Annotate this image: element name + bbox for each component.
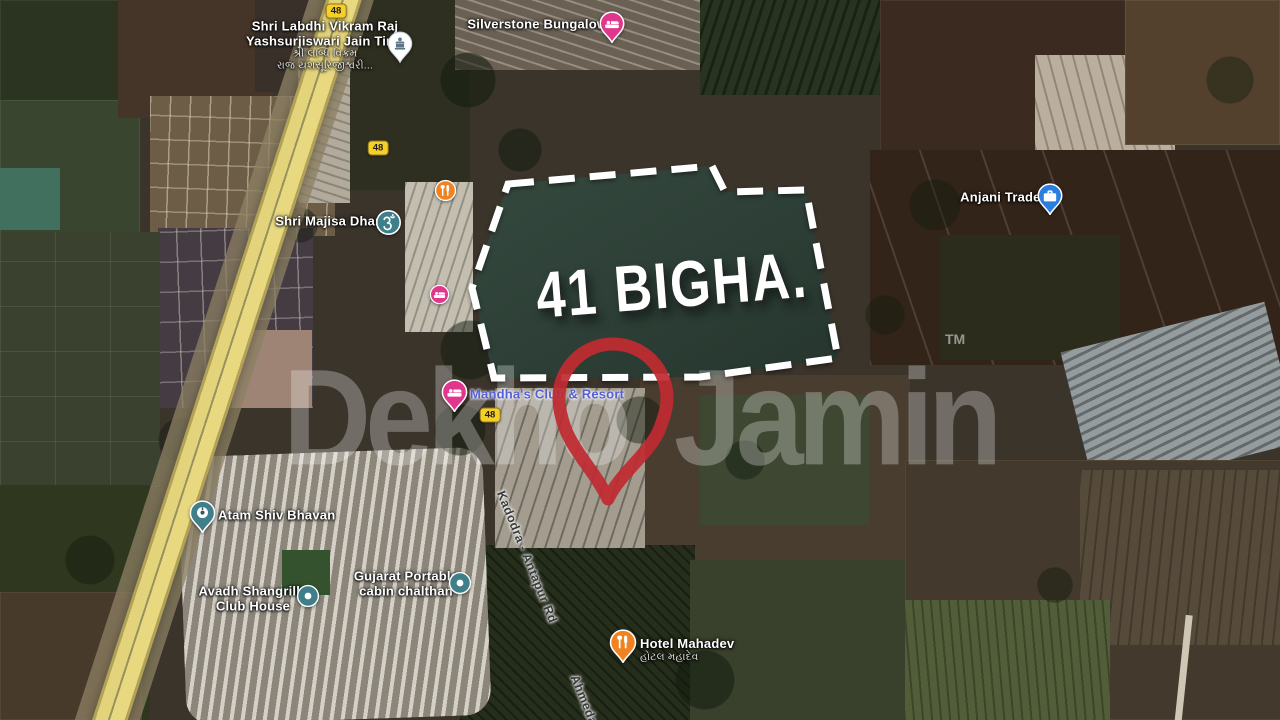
map-canvas[interactable]: Dekho Jamin TM Shri Labdhi Vikram Raj Ya…	[0, 0, 1280, 720]
location-pin-icon	[0, 0, 1280, 720]
